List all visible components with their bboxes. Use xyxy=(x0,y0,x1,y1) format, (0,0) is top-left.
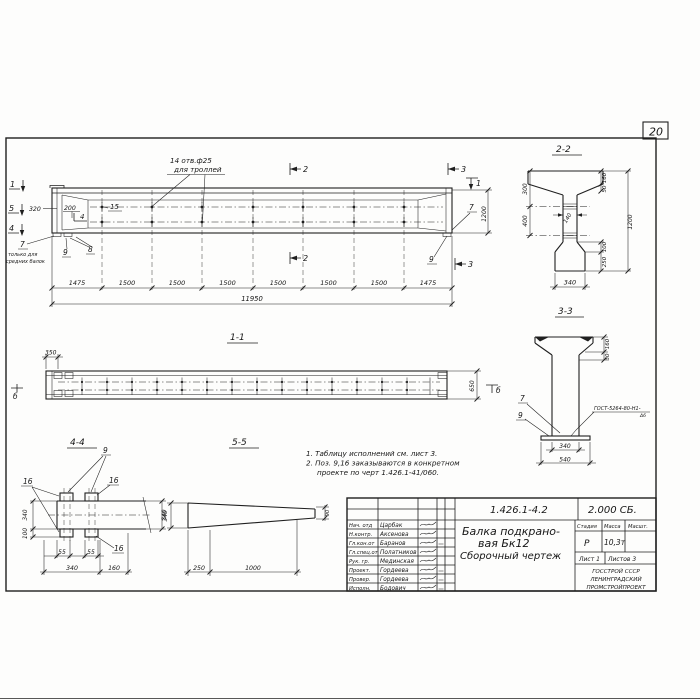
org-line1: ГОССТРОЙ СССР xyxy=(592,568,640,575)
doc-code: 2.000 СБ. xyxy=(588,505,637,516)
pos-7-right: 7 xyxy=(469,203,474,212)
value-mass: 10,3т xyxy=(604,538,626,547)
pos-16-left: 16 xyxy=(23,477,33,486)
drawing-title-line3: Сборочный чертеж xyxy=(460,550,561,562)
dim-250: 250 xyxy=(602,256,608,267)
dim-340: 340 xyxy=(559,443,571,450)
dim-55b: 55 xyxy=(87,549,95,556)
dim-total: 11950 xyxy=(241,295,263,303)
pos-9-right: 9 xyxy=(429,255,434,264)
pos-16-top: 16 xyxy=(109,476,119,485)
section-mark-4: 4 xyxy=(9,224,14,233)
hole-callout-line1: 14 отв.ф25 xyxy=(170,156,212,165)
staff-name: Аксенова xyxy=(379,532,409,538)
mark-b-left: б xyxy=(13,392,18,401)
section-1-1: 1-1 350 650 б б xyxy=(11,333,501,402)
dim-650: 650 xyxy=(469,380,476,392)
staff-name: Гордеева xyxy=(380,568,409,574)
dim-100: 100 xyxy=(602,241,608,252)
dim-segment: 1500 xyxy=(371,279,388,287)
dim-320: 320 xyxy=(29,206,41,213)
dim-left-340: 340 xyxy=(163,510,169,521)
dim-55a: 55 xyxy=(58,549,66,556)
dim-350: 350 xyxy=(45,350,57,357)
section-mark-4-inner: 4 xyxy=(80,213,84,221)
weld-note-line1: ГОСТ-5264-80-Н1- xyxy=(594,406,641,412)
section-2-2: 2-2 300 400 140 160 50 100 250 1200 340 xyxy=(522,145,634,290)
positions-left-end: 7 только для средних балок 9 8 xyxy=(6,236,95,265)
staff-name: Полатников xyxy=(380,550,417,556)
staff-role: Исполн. xyxy=(349,586,371,592)
value-stage: Р xyxy=(584,539,590,549)
org-line2: ЛЕНИНГРАДСКИЙ xyxy=(589,576,642,583)
dim-1200-section: 1200 xyxy=(627,214,634,229)
staff-role: Провер. xyxy=(349,577,371,583)
section-4-4-title: 4-4 xyxy=(70,438,85,448)
pos-9: 9 xyxy=(518,411,523,420)
pos-16-bottom: 16 xyxy=(114,544,124,553)
staff-name: Бодович xyxy=(380,586,406,592)
staff-role: Нач. отд xyxy=(349,523,373,529)
dim-segment: 1500 xyxy=(119,279,136,287)
pos-15: 15 xyxy=(110,203,119,211)
pos-7: 7 xyxy=(20,240,25,249)
drawing-title-line2: вая Бк12 xyxy=(478,537,530,550)
dim-160: 160 xyxy=(602,172,608,183)
signature-scribbles xyxy=(420,522,444,589)
note-line2: 2. Поз. 9,16 заказываются в конкретном xyxy=(306,459,460,468)
pos-7: 7 xyxy=(520,394,525,403)
dim-540: 540 xyxy=(559,457,571,464)
dim-segment: 1475 xyxy=(69,279,86,287)
note-line1: 1. Таблицу исполнений см. лист 3. xyxy=(306,449,437,458)
dim-340: 340 xyxy=(66,565,78,572)
dim-segment: 1500 xyxy=(169,279,186,287)
header-scale: Масшт. xyxy=(628,524,648,530)
dim-segment: 1500 xyxy=(320,279,337,287)
drawing-sheet: 20 14 отв.ф25 для троллей 1 5 xyxy=(0,0,700,700)
section-marks-left: 1 5 4 xyxy=(8,180,25,236)
cut-2-bottom: 2 xyxy=(303,254,308,263)
dim-140: 140 xyxy=(563,212,574,225)
main-elevation-view: 14 отв.ф25 для троллей 1 5 4 320 200 15 … xyxy=(6,156,492,307)
pos-7-note-line2: средних балок xyxy=(6,259,45,265)
pos-9: 9 xyxy=(103,446,108,455)
doc-number: 1.426.1-4.2 xyxy=(490,505,548,516)
sheet-count: Листов 3 xyxy=(607,556,636,563)
dim-30: 30 xyxy=(605,353,611,360)
staff-name: Гордеева xyxy=(380,577,409,583)
page-number-badge: 20 xyxy=(643,122,668,139)
notes: 1. Таблицу исполнений см. лист 3. 2. Поз… xyxy=(306,449,460,477)
section-3-3-title: 3-3 xyxy=(558,307,573,317)
staff-role: Гл.спец.от xyxy=(349,550,379,556)
mark-b-right: б xyxy=(496,386,501,395)
section-mark-1: 1 xyxy=(10,180,15,189)
section-5-5-title: 5-5 xyxy=(232,438,247,448)
staff-name: Царбак xyxy=(380,523,403,529)
org-line3: ПРОМСТРОЙПРОЕКТ xyxy=(587,584,647,591)
dim-300: 300 xyxy=(522,183,529,195)
dim-250: 250 xyxy=(193,565,205,572)
dim-160: 160 xyxy=(108,565,120,572)
staff-role: Рук. гр. xyxy=(349,559,369,565)
dim-left-340: 340 xyxy=(23,509,29,520)
section-1-1-title: 1-1 xyxy=(230,333,245,343)
staff-name: Мединская xyxy=(380,559,414,565)
dim-90: 90 xyxy=(325,509,331,516)
engineering-drawing: 20 14 отв.ф25 для троллей 1 5 xyxy=(0,0,700,700)
dim-340: 340 xyxy=(564,279,576,287)
header-stage: Стадия xyxy=(577,524,597,530)
pos-9: 9 xyxy=(63,248,68,257)
staff-role: Н.контр. xyxy=(349,532,372,538)
dim-segment: 1475 xyxy=(420,279,437,287)
cut-3-bottom: 3 xyxy=(468,260,473,269)
dim-200: 200 xyxy=(64,205,76,212)
dim-segment: 1500 xyxy=(219,279,236,287)
section-mark-5: 5 xyxy=(9,204,14,213)
sheet-number: Лист 1 xyxy=(578,556,600,563)
dim-1000: 1000 xyxy=(245,565,261,572)
cut-1-right: 1 xyxy=(476,179,481,188)
weld-note-line2: Δ6 xyxy=(639,413,646,419)
page-number: 20 xyxy=(649,126,663,139)
dim-400: 400 xyxy=(522,215,529,227)
plan-holes xyxy=(81,378,430,396)
cut-2-top: 2 xyxy=(303,165,308,174)
staff-role: Проект. xyxy=(349,568,370,574)
cut-3-top: 3 xyxy=(461,165,466,174)
dim-left-100: 100 xyxy=(23,528,29,539)
dimension-chain: 1475 1500 1500 1500 1500 1500 1500 1475 … xyxy=(50,236,455,307)
section-2-2-title: 2-2 xyxy=(556,145,571,155)
dim-1200: 1200 xyxy=(481,206,488,222)
pos-7-note-line1: только для xyxy=(8,252,37,258)
dim-segment: 1500 xyxy=(270,279,287,287)
note-line3: проекте по черт 1.426.1-41/060. xyxy=(317,468,439,477)
title-block: 1.426.1-4.2 2.000 СБ. Нач. отд Царбак Н.… xyxy=(347,498,656,592)
section-3-3: 3-3 160 30 7 9 ГОСТ-5264-80-Н1- Δ6 340 5… xyxy=(516,307,650,466)
dim-160: 160 xyxy=(605,338,611,349)
section-4-4: 4-4 9 16 16 16 340 100 55 55 340 160 340 xyxy=(21,438,168,575)
hole-callout-line2: для троллей xyxy=(173,165,222,174)
staff-name: Баранов xyxy=(380,541,406,547)
staff-rows: Нач. отд Царбак Н.контр. Аксенова Гл.кон… xyxy=(349,522,444,592)
header-mass: Масса xyxy=(604,524,621,530)
dim-50: 50 xyxy=(602,185,608,192)
staff-role: Гл.кон.от xyxy=(349,541,375,547)
